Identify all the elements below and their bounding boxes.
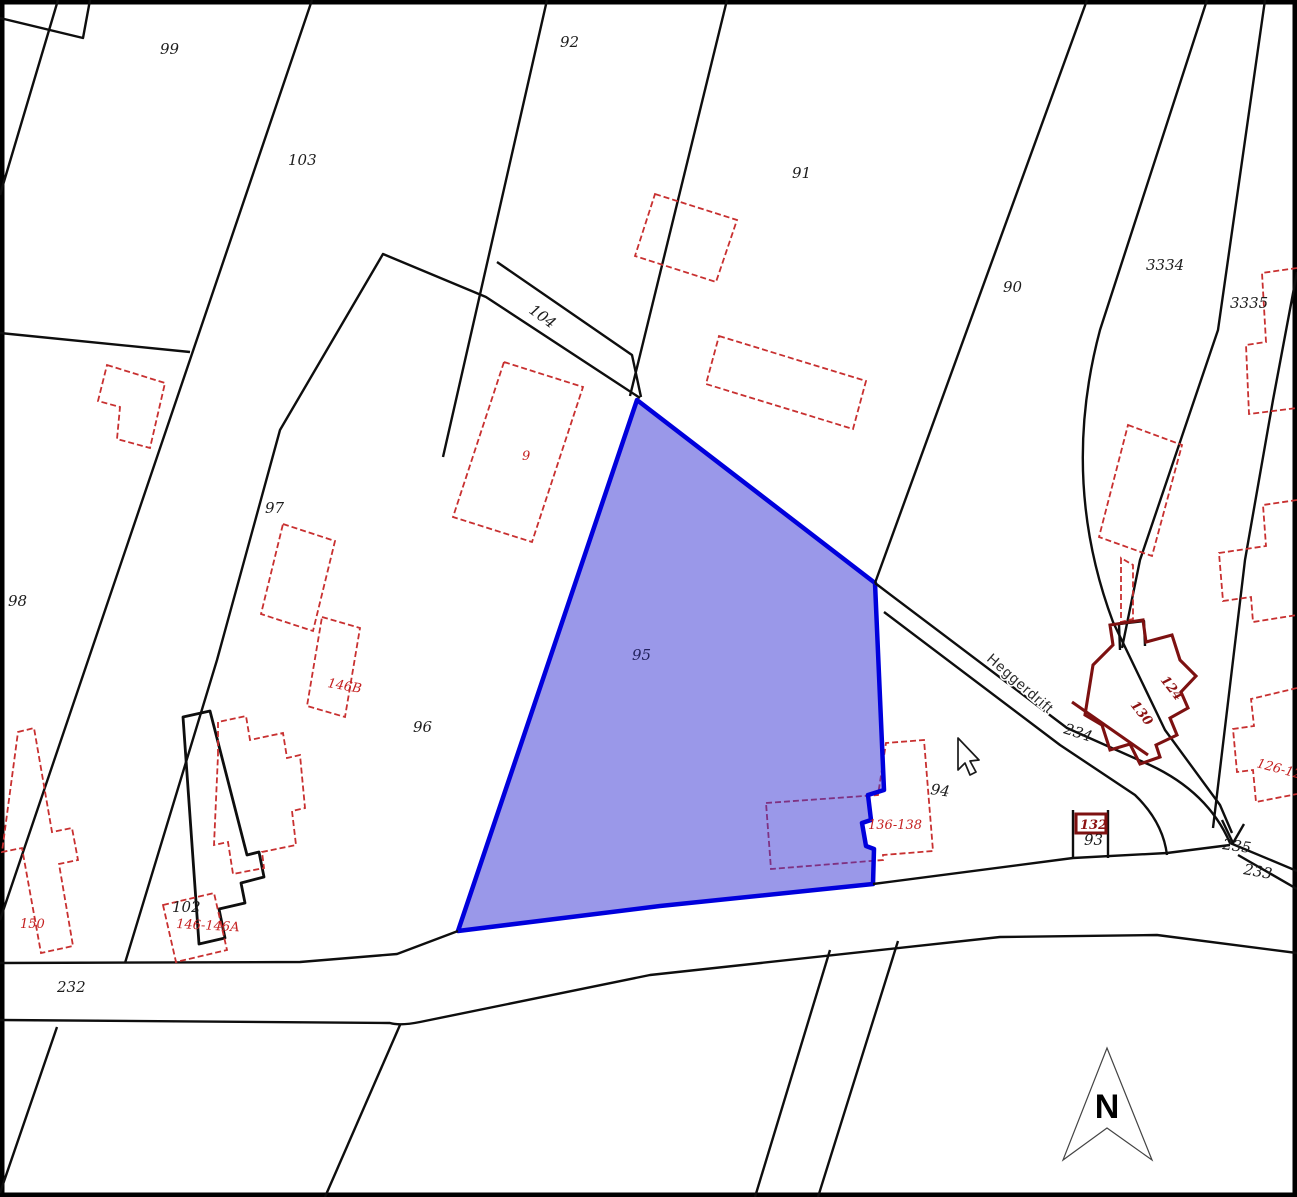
parcel-label-99: 99 [160,40,180,58]
parcel-label-232: 232 [56,978,86,996]
building-label-9: 9 [522,449,530,464]
parcel-label-103: 103 [288,151,317,169]
parcel-label-91: 91 [792,164,811,182]
parcel-label-92: 92 [560,33,579,51]
map-viewport: 9910392919033343335104979896959493102232… [0,0,1297,1197]
cadastral-map-canvas[interactable]: 9910392919033343335104979896959493102232… [0,0,1297,1197]
parcel-label-3334: 3334 [1146,256,1184,274]
parcel-label-96: 96 [413,718,433,736]
parcel-label-102: 102 [172,898,201,916]
parcel-label-3335: 3335 [1230,294,1268,312]
parcel-label-94: 94 [929,780,950,800]
north-arrow-label: N [1095,1088,1120,1126]
building-label-150: 150 [20,917,45,932]
parcel-label-95: 95 [632,646,651,664]
building-label-132: 132 [1080,818,1107,833]
parcel-label-98: 98 [8,592,27,610]
parcel-label-90: 90 [1003,278,1023,296]
parcel-label-97: 97 [265,499,285,517]
parcel-label-93: 93 [1084,831,1103,849]
building-label-136-138: 136-138 [868,818,922,833]
